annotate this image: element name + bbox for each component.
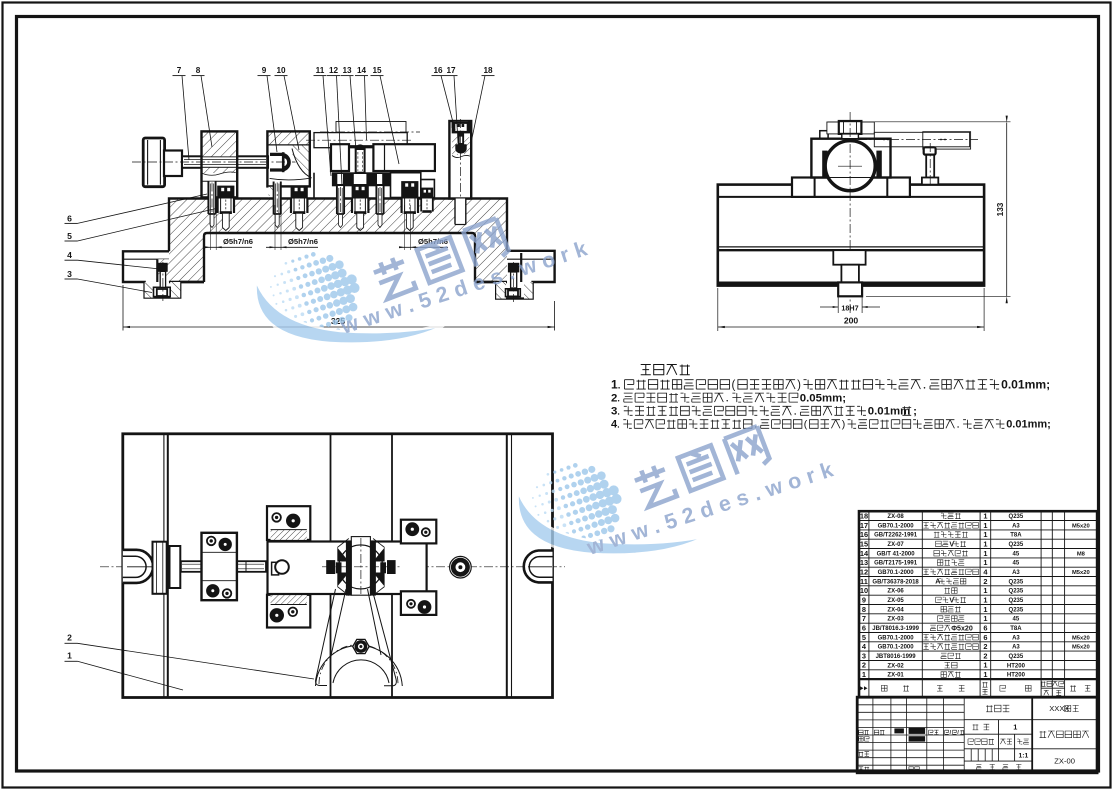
svg-text:M5x20: M5x20 bbox=[1072, 523, 1090, 529]
svg-text:GB70.1-2000: GB70.1-2000 bbox=[878, 645, 915, 651]
svg-text:V: V bbox=[949, 540, 954, 548]
svg-text:ZX-01: ZX-01 bbox=[887, 673, 904, 679]
svg-text:GB70.1-2000: GB70.1-2000 bbox=[878, 635, 915, 641]
svg-text:ZX-08: ZX-08 bbox=[887, 514, 904, 520]
svg-text:45: 45 bbox=[1013, 617, 1020, 623]
svg-text:1: 1 bbox=[983, 586, 987, 595]
svg-text:A3: A3 bbox=[1012, 645, 1020, 651]
svg-text:1: 1 bbox=[67, 651, 72, 661]
svg-text:4: 4 bbox=[611, 419, 618, 431]
svg-text:16: 16 bbox=[433, 66, 443, 75]
svg-text:13: 13 bbox=[342, 66, 352, 75]
svg-text:200: 200 bbox=[844, 316, 859, 326]
svg-text:T8A: T8A bbox=[1010, 533, 1022, 539]
svg-text:ZX-04: ZX-04 bbox=[887, 607, 904, 613]
svg-text:5: 5 bbox=[67, 231, 72, 241]
svg-text:1:1: 1:1 bbox=[1018, 753, 1028, 760]
svg-text:(: ( bbox=[732, 379, 736, 391]
svg-text:11: 11 bbox=[860, 577, 868, 586]
svg-text:GB/T2175-1991: GB/T2175-1991 bbox=[874, 561, 918, 567]
svg-text:GB/T 41-2000: GB/T 41-2000 bbox=[877, 551, 916, 557]
svg-text:A3: A3 bbox=[1012, 635, 1020, 641]
svg-text:GB70.1-2000: GB70.1-2000 bbox=[878, 523, 915, 529]
svg-text:14: 14 bbox=[357, 66, 367, 75]
svg-text:8: 8 bbox=[862, 605, 866, 614]
svg-text:HT200: HT200 bbox=[1007, 673, 1026, 679]
svg-text:7: 7 bbox=[862, 614, 866, 623]
svg-text:V: V bbox=[949, 596, 954, 604]
svg-text:ZX-03: ZX-03 bbox=[887, 617, 904, 623]
svg-text:18: 18 bbox=[860, 511, 868, 520]
svg-text:GB/T36378-2018: GB/T36378-2018 bbox=[872, 579, 919, 585]
svg-text:1: 1 bbox=[983, 521, 987, 530]
svg-text:12: 12 bbox=[860, 567, 868, 576]
svg-text:11: 11 bbox=[316, 66, 325, 75]
svg-text:6: 6 bbox=[67, 214, 72, 224]
svg-text:): ) bbox=[797, 379, 801, 391]
svg-text:10: 10 bbox=[276, 66, 286, 75]
svg-text:M5x20: M5x20 bbox=[1072, 645, 1090, 651]
svg-text:2: 2 bbox=[862, 661, 866, 670]
svg-text:ZX-06: ZX-06 bbox=[887, 589, 904, 595]
svg-text:HT200: HT200 bbox=[1007, 663, 1026, 669]
svg-text:Φ5x20: Φ5x20 bbox=[951, 624, 973, 632]
svg-text:18H7: 18H7 bbox=[841, 304, 858, 313]
svg-text:1: 1 bbox=[983, 549, 987, 558]
svg-text:1: 1 bbox=[1013, 723, 1017, 732]
svg-text:2: 2 bbox=[983, 651, 987, 660]
svg-text:Q235: Q235 bbox=[1009, 514, 1024, 520]
svg-text:15: 15 bbox=[372, 66, 382, 75]
svg-text:GB/T2262-1991: GB/T2262-1991 bbox=[874, 533, 918, 539]
svg-text:17: 17 bbox=[860, 521, 868, 530]
svg-text:13: 13 bbox=[860, 558, 868, 567]
svg-text:1: 1 bbox=[611, 377, 618, 391]
svg-text:(: ( bbox=[804, 419, 808, 431]
svg-text:3: 3 bbox=[67, 269, 72, 279]
svg-text:1: 1 bbox=[983, 595, 987, 604]
svg-text:2: 2 bbox=[611, 392, 617, 404]
svg-text:M8: M8 bbox=[1077, 551, 1086, 557]
svg-text:1: 1 bbox=[983, 614, 987, 623]
svg-text:Q235: Q235 bbox=[1009, 542, 1024, 548]
svg-text:15: 15 bbox=[860, 539, 868, 548]
svg-text:0.05mm;: 0.05mm; bbox=[800, 392, 846, 404]
svg-text:A: A bbox=[935, 578, 940, 586]
svg-text:6: 6 bbox=[862, 623, 866, 632]
svg-text:Q235: Q235 bbox=[1009, 579, 1024, 585]
svg-text:M5x20: M5x20 bbox=[1072, 635, 1090, 641]
svg-text:Q235: Q235 bbox=[1009, 598, 1024, 604]
svg-text:Ø5h7/n6: Ø5h7/n6 bbox=[223, 237, 253, 246]
svg-text:Q235: Q235 bbox=[1009, 654, 1024, 660]
svg-text:Q235: Q235 bbox=[1009, 589, 1024, 595]
svg-text:8: 8 bbox=[196, 66, 201, 75]
svg-text:1: 1 bbox=[983, 511, 987, 520]
svg-text:1: 1 bbox=[983, 661, 987, 670]
svg-text:1: 1 bbox=[862, 670, 866, 679]
svg-text:A3: A3 bbox=[1012, 523, 1020, 529]
svg-text:45: 45 bbox=[1013, 551, 1020, 557]
svg-text:3: 3 bbox=[862, 651, 866, 660]
svg-text:10: 10 bbox=[860, 586, 868, 595]
svg-text:;: ; bbox=[913, 406, 917, 418]
svg-text:6: 6 bbox=[983, 623, 987, 632]
svg-text:9: 9 bbox=[262, 66, 267, 75]
svg-text:T8A: T8A bbox=[1010, 626, 1022, 632]
svg-text:14: 14 bbox=[860, 549, 869, 558]
svg-text:6: 6 bbox=[983, 633, 987, 642]
svg-text:ZX-07: ZX-07 bbox=[887, 542, 904, 548]
svg-text:JB/T8016.3-1999: JB/T8016.3-1999 bbox=[872, 626, 919, 632]
svg-text:4: 4 bbox=[67, 250, 72, 260]
svg-text:133: 133 bbox=[996, 202, 1005, 216]
svg-text:2: 2 bbox=[983, 642, 987, 651]
svg-text:0.01mm;: 0.01mm; bbox=[1001, 377, 1050, 391]
svg-text:JBT8016-1999: JBT8016-1999 bbox=[876, 654, 917, 660]
svg-text:): ) bbox=[842, 419, 846, 431]
svg-text:ZX-00: ZX-00 bbox=[1054, 757, 1075, 766]
svg-text:Ø5h7/n6: Ø5h7/n6 bbox=[288, 237, 318, 246]
svg-text:45: 45 bbox=[1013, 561, 1020, 567]
svg-text:2: 2 bbox=[983, 577, 987, 586]
svg-text:3: 3 bbox=[611, 406, 617, 418]
svg-text:1: 1 bbox=[983, 670, 987, 679]
svg-text:M5x20: M5x20 bbox=[1072, 570, 1090, 576]
svg-text:18: 18 bbox=[483, 66, 493, 75]
svg-text:12: 12 bbox=[329, 66, 339, 75]
svg-text:2: 2 bbox=[67, 633, 72, 643]
svg-text:9: 9 bbox=[862, 595, 866, 604]
svg-text:1: 1 bbox=[983, 605, 987, 614]
svg-text:17: 17 bbox=[446, 66, 456, 75]
svg-text:GB70.1-2000: GB70.1-2000 bbox=[878, 570, 915, 576]
svg-text:1: 1 bbox=[983, 539, 987, 548]
svg-text:5: 5 bbox=[862, 633, 866, 642]
svg-text:Q235: Q235 bbox=[1009, 607, 1024, 613]
svg-text:ZX-05: ZX-05 bbox=[887, 598, 904, 604]
svg-text:7: 7 bbox=[177, 66, 182, 75]
svg-text:A3: A3 bbox=[1012, 570, 1020, 576]
svg-text:1: 1 bbox=[983, 530, 987, 539]
svg-text:1: 1 bbox=[983, 558, 987, 567]
svg-text:0.01mm;: 0.01mm; bbox=[1006, 419, 1051, 431]
svg-text:ZX-02: ZX-02 bbox=[887, 663, 904, 669]
svg-text:16: 16 bbox=[860, 530, 868, 539]
